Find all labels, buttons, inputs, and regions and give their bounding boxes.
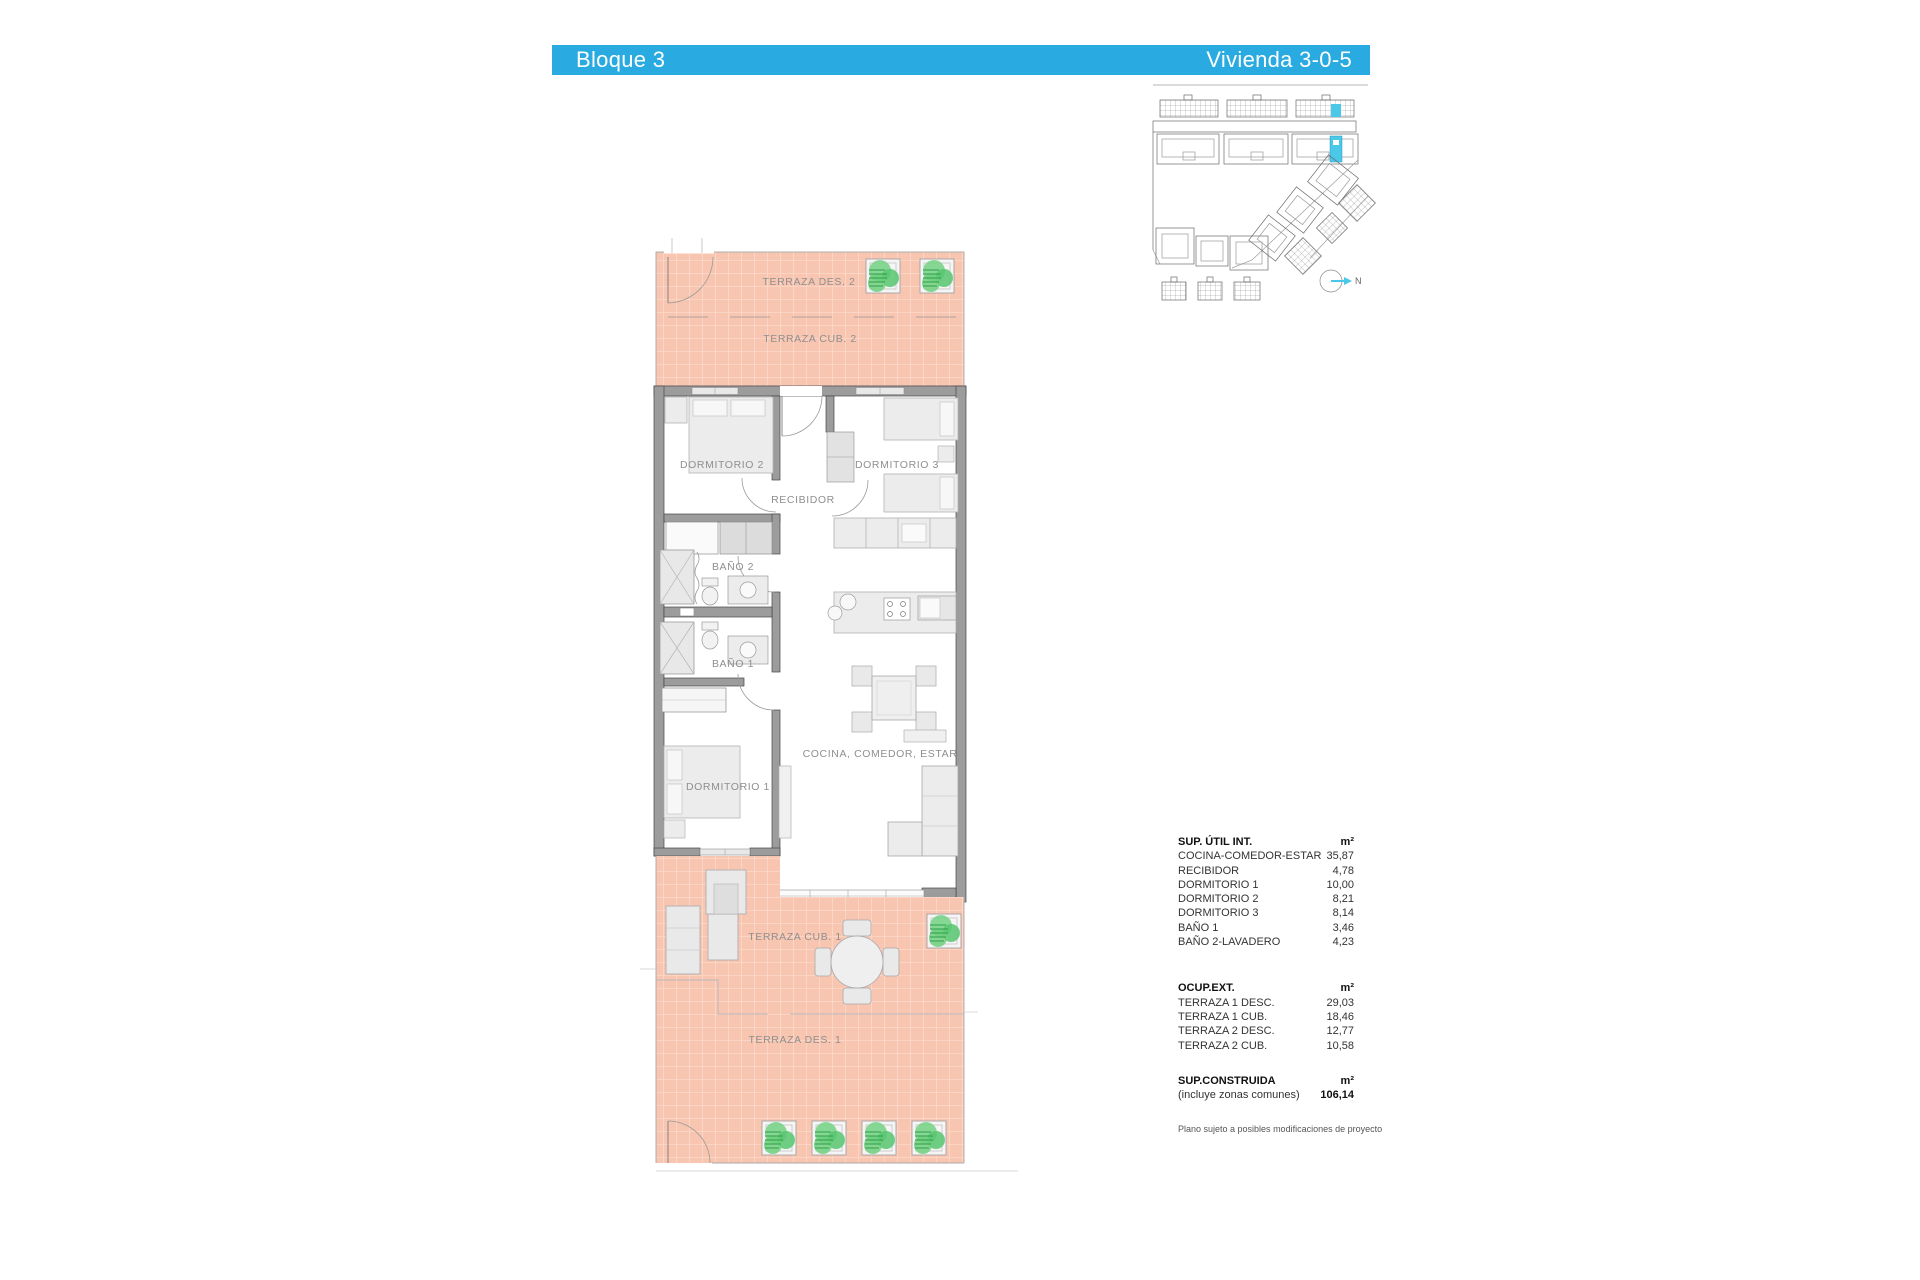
area-row: COCINA-COMEDOR-ESTAR35,87	[1178, 849, 1354, 863]
area-row: TERRAZA 1 DESC.29,03	[1178, 996, 1354, 1010]
areas-table: SUP. ÚTIL INT. m² COCINA-COMEDOR-ESTAR35…	[1178, 835, 1354, 1134]
plan-sheet: TERRAZA DES. 2 TERRAZA CUB. 2	[0, 0, 1920, 1280]
highlighted-unit	[1330, 136, 1342, 162]
north-arrow-icon: N	[1320, 270, 1362, 292]
label-dormitorio-2: DORMITORIO 2	[680, 459, 764, 471]
label-dormitorio-3: DORMITORIO 3	[855, 459, 939, 471]
unit-label: m²	[1341, 1074, 1354, 1088]
section-header: SUP. ÚTIL INT. m²	[1178, 835, 1354, 849]
section-header: SUP.CONSTRUIDA m²	[1178, 1074, 1354, 1088]
label-bano-1: BAÑO 1	[712, 657, 754, 670]
section-title: SUP. ÚTIL INT.	[1178, 835, 1252, 849]
area-row: TERRAZA 2 CUB.10,58	[1178, 1039, 1354, 1053]
unit-label: m²	[1341, 981, 1354, 995]
areas-section-construida: SUP.CONSTRUIDA m² (incluye zonas comunes…	[1178, 1074, 1354, 1103]
label-terraza-cub-2: TERRAZA CUB. 2	[763, 333, 857, 345]
label-dormitorio-1: DORMITORIO 1	[686, 781, 770, 793]
north-label: N	[1355, 276, 1362, 286]
floor-plan: TERRAZA DES. 2 TERRAZA CUB. 2	[640, 238, 1018, 1171]
section-title: OCUP.EXT.	[1178, 981, 1235, 995]
area-row: DORMITORIO 38,14	[1178, 906, 1354, 920]
area-row: TERRAZA 1 CUB.18,46	[1178, 1010, 1354, 1024]
areas-section-exterior: OCUP.EXT. m² TERRAZA 1 DESC.29,03 TERRAZ…	[1178, 981, 1354, 1052]
disclaimer-note: Plano sujeto a posibles modificaciones d…	[1178, 1124, 1354, 1134]
label-bano-2: BAÑO 2	[712, 560, 754, 573]
label-terraza-cub-1: TERRAZA CUB. 1	[748, 931, 842, 943]
terrace2-door-opening	[664, 250, 714, 254]
label-terraza-des-1: TERRAZA DES. 1	[748, 1034, 841, 1046]
label-cocina-comedor-estar: COCINA, COMEDOR, ESTAR	[803, 748, 958, 760]
areas-section-util: SUP. ÚTIL INT. m² COCINA-COMEDOR-ESTAR35…	[1178, 835, 1354, 949]
area-row: RECIBIDOR4,78	[1178, 864, 1354, 878]
area-row: TERRAZA 2 DESC.12,77	[1178, 1024, 1354, 1038]
entrance-opening	[780, 386, 822, 396]
key-plan: N	[1153, 85, 1375, 300]
unit-title: Vivienda 3-0-5	[1206, 47, 1352, 73]
kitchen	[828, 592, 956, 633]
title-bar: Bloque 3 Vivienda 3-0-5	[552, 45, 1370, 75]
label-terraza-des-2: TERRAZA DES. 2	[762, 276, 855, 288]
area-row: BAÑO 2-LAVADERO4,23	[1178, 935, 1354, 949]
area-row: DORMITORIO 28,21	[1178, 892, 1354, 906]
highlight-parking-cell	[1331, 104, 1341, 117]
area-row: BAÑO 13,46	[1178, 921, 1354, 935]
block-title: Bloque 3	[576, 47, 665, 73]
area-row: DORMITORIO 110,00	[1178, 878, 1354, 892]
unit-label: m²	[1341, 835, 1354, 849]
terrace-2: TERRAZA DES. 2 TERRAZA CUB. 2	[656, 238, 964, 386]
section-title: SUP.CONSTRUIDA	[1178, 1074, 1276, 1088]
area-row: (incluye zonas comunes) 106,14	[1178, 1088, 1354, 1102]
terrace-1: TERRAZA CUB. 1 TERRAZA DES. 1	[640, 856, 1018, 1171]
label-recibidor: RECIBIDOR	[771, 494, 835, 506]
section-header: OCUP.EXT. m²	[1178, 981, 1354, 995]
